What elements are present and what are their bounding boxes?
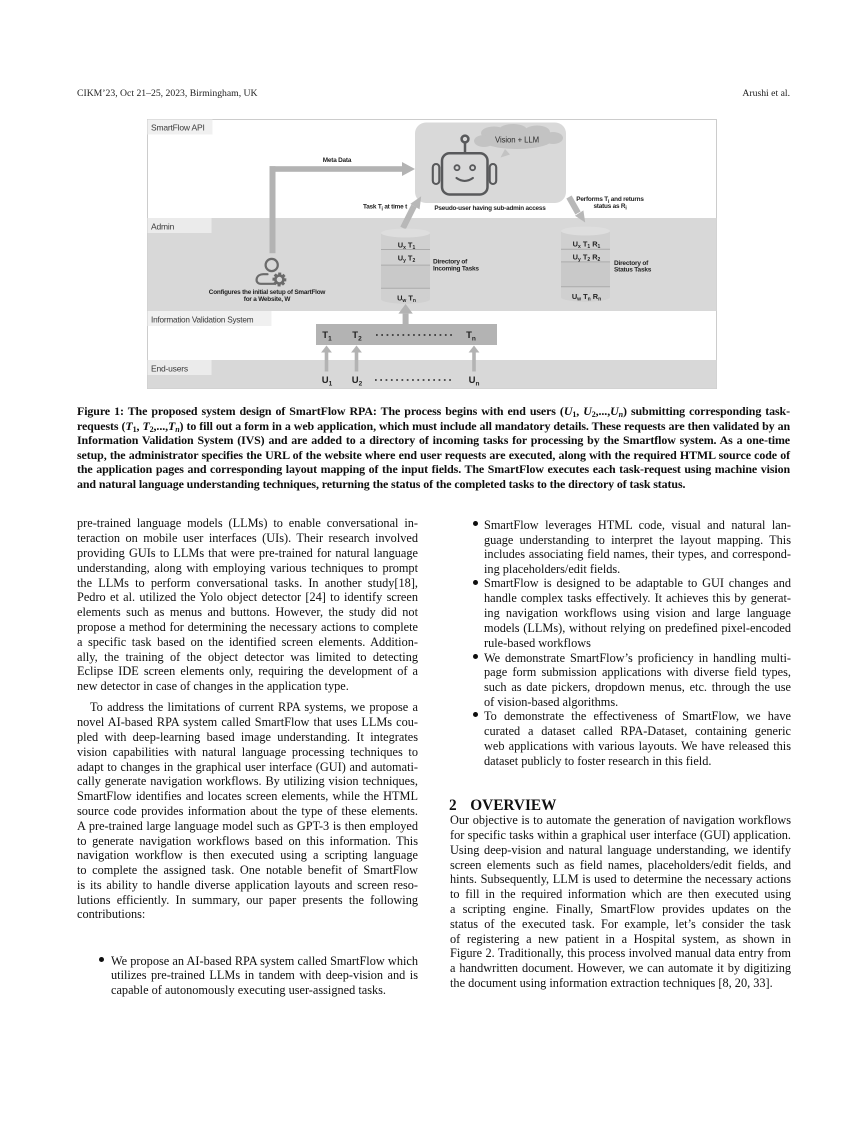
- svg-text:Admin: Admin: [151, 222, 175, 232]
- svg-text:End-users: End-users: [151, 364, 188, 374]
- svg-text:Pseudo-user having sub-admin a: Pseudo-user having sub-admin access: [434, 205, 546, 212]
- svg-text:for a Website, W: for a Website, W: [244, 296, 292, 303]
- svg-text:Meta Data: Meta Data: [323, 157, 352, 164]
- svg-text:SmartFlow API: SmartFlow API: [151, 123, 205, 133]
- svg-text:Status Tasks: Status Tasks: [614, 267, 652, 274]
- svg-text:Configures the initial setup o: Configures the initial setup of SmartFlo…: [209, 289, 326, 296]
- svg-text:Information Validation System: Information Validation System: [151, 316, 254, 325]
- svg-text:Incoming Tasks: Incoming Tasks: [433, 265, 479, 272]
- svg-text:Vision + LLM: Vision + LLM: [495, 135, 539, 144]
